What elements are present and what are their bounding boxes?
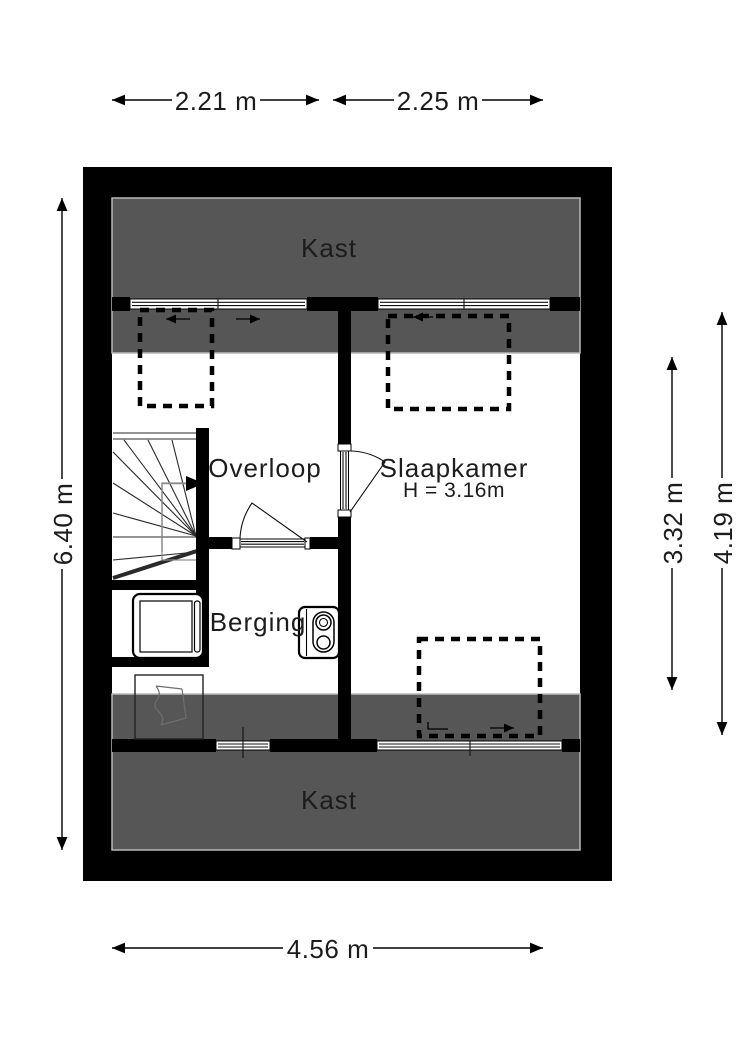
wall-overloop-berging-left [205,537,232,549]
dim-label-bottom: 4.56 m [287,934,370,964]
dim-label-top-left: 2.21 m [175,86,258,116]
wall-closet-top [96,580,209,590]
room-label-kast-bottom: Kast [301,785,357,815]
dimension-left: 6.40 m [48,198,78,850]
room-label-overloop: Overloop [208,453,322,483]
dimension-right-outer: 4.19 m [708,312,738,735]
dim-label-right-outer: 4.19 m [708,482,738,565]
dimension-top-left: 2.21 m [112,86,319,116]
dim-label-right-inner: 3.32 m [658,482,688,565]
dimension-right-inner: 3.32 m [658,357,688,690]
room-height-note: H = 3.16m [403,479,505,502]
floorplan-page: Kast Overloop Slaapkamer H = 3.16m Bergi… [0,0,743,1050]
dimension-top-right: 2.25 m [333,86,543,116]
room-label-kast-top: Kast [301,233,357,263]
knee-wall-top [112,297,580,311]
room-label-berging: Berging [210,607,307,637]
wall-middle-upper [338,311,351,444]
washing-machine-icon [133,594,203,658]
dim-label-left: 6.40 m [48,483,78,566]
dimension-bottom: 4.56 m [112,934,543,964]
floorplan-drawing: Kast Overloop Slaapkamer H = 3.16m Bergi… [0,0,743,1050]
dim-label-top-right: 2.25 m [397,86,480,116]
wall-overloop-berging-right [310,537,351,549]
window-top-left-icon [130,299,307,309]
window-top-right-icon [378,299,550,309]
